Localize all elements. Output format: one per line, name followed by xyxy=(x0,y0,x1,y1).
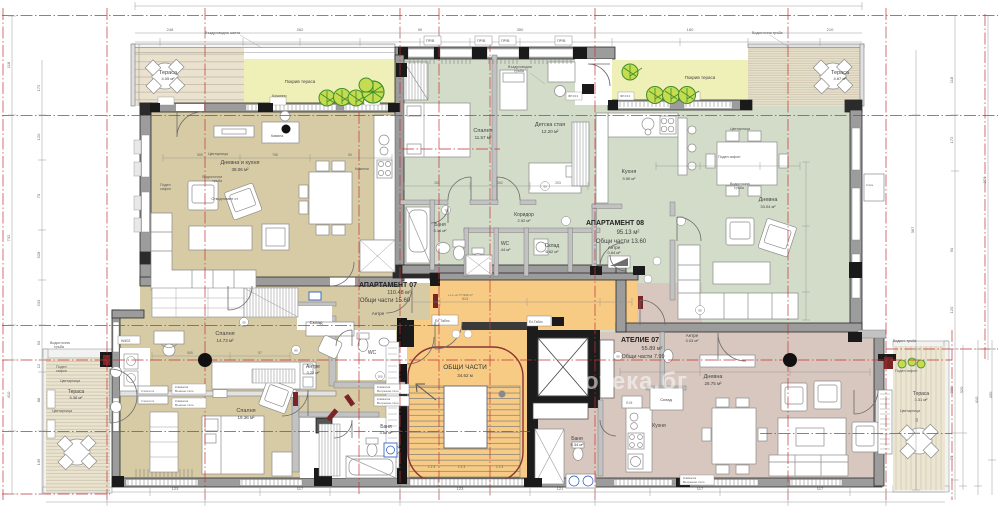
svg-text:Склад: Склад xyxy=(309,320,322,325)
svg-text:117: 117 xyxy=(297,486,304,491)
svg-text:+с.к +2.77=936.17: +с.к +2.77=936.17 xyxy=(448,293,473,297)
svg-text:ПР/В: ПР/В xyxy=(557,39,566,43)
svg-text:136: 136 xyxy=(36,458,41,465)
svg-text:АТЕЛИЕ 07: АТЕЛИЕ 07 xyxy=(621,337,659,344)
svg-text:3.03 м²: 3.03 м² xyxy=(686,338,700,343)
svg-text:тръба: тръба xyxy=(54,345,64,349)
svg-text:Цветарница: Цветарница xyxy=(60,379,80,383)
svg-text:Външно тяло: Външно тяло xyxy=(175,403,194,407)
svg-text:WC: WC xyxy=(368,350,377,356)
svg-text:Клим.: Клим. xyxy=(866,183,874,187)
svg-text:Въздуховодна шахта: Въздуховодна шахта xyxy=(205,31,240,35)
svg-text:121: 121 xyxy=(557,486,564,491)
svg-text:Външно тяло: Външно тяло xyxy=(175,389,194,393)
svg-text:11.57 м²: 11.57 м² xyxy=(475,135,492,140)
svg-text:Общи части 13.60: Общи части 13.60 xyxy=(596,239,647,245)
svg-text:Вътрешно тяло: Вътрешно тяло xyxy=(377,389,399,393)
svg-text:1 2 3: 1 2 3 xyxy=(428,465,435,469)
svg-text:Климатик: Климатик xyxy=(141,399,155,403)
svg-text:Коминни: Коминни xyxy=(272,94,287,98)
svg-text:ФР4/13: ФР4/13 xyxy=(568,94,578,98)
svg-text:90: 90 xyxy=(698,309,702,313)
svg-text:Цветарница: Цветарница xyxy=(52,409,72,413)
svg-text:117: 117 xyxy=(697,486,704,491)
svg-text:Общи части 15.60: Общи части 15.60 xyxy=(360,298,411,304)
svg-text:АПАРТАМЕНТ 07: АПАРТАМЕНТ 07 xyxy=(359,282,417,289)
svg-text:320: 320 xyxy=(982,176,987,183)
svg-text:758: 758 xyxy=(272,153,278,157)
svg-text:55.89 м²: 55.89 м² xyxy=(642,346,663,352)
svg-text:Поден сифон: Поден сифон xyxy=(895,369,917,373)
svg-text:172: 172 xyxy=(36,84,41,91)
svg-text:Вътрешно тяло: Вътрешно тяло xyxy=(683,480,705,484)
svg-text:Спалня: Спалня xyxy=(473,128,492,134)
svg-text:430: 430 xyxy=(988,391,993,398)
svg-text:505: 505 xyxy=(187,351,193,355)
svg-text:160: 160 xyxy=(687,27,694,32)
svg-text:Вътрешно тяло: Вътрешно тяло xyxy=(377,401,399,405)
svg-text:Спалня: Спалня xyxy=(236,408,255,414)
svg-text:248: 248 xyxy=(167,27,174,32)
svg-text:Детска стая: Детска стая xyxy=(535,122,565,128)
svg-text:Цветарница: Цветарница xyxy=(730,127,750,131)
svg-text:35: 35 xyxy=(949,455,954,460)
svg-text:410: 410 xyxy=(6,391,11,398)
svg-text:80: 80 xyxy=(294,349,298,353)
svg-text:110.48 м²: 110.48 м² xyxy=(387,290,411,296)
svg-text:97: 97 xyxy=(258,351,262,355)
svg-text:Ел.Табло: Ел.Табло xyxy=(529,320,543,324)
svg-text:3.16 м²: 3.16 м² xyxy=(434,228,448,233)
svg-text:Цветарница: Цветарница xyxy=(208,152,228,156)
svg-text:38.06 м²: 38.06 м² xyxy=(231,167,249,172)
svg-text:Цветарница: Цветарница xyxy=(900,409,920,413)
svg-text:5.38 м²: 5.38 м² xyxy=(70,395,84,400)
svg-text:отека.бг: отека.бг xyxy=(584,368,688,395)
svg-text:W402: W402 xyxy=(121,339,130,343)
svg-text:4.05 м²: 4.05 м² xyxy=(162,76,176,81)
svg-text:120: 120 xyxy=(949,306,954,313)
svg-text:262: 262 xyxy=(297,27,304,32)
svg-text:Склад: Склад xyxy=(660,397,672,402)
svg-text:210: 210 xyxy=(827,27,834,32)
svg-text:Поден сифон: Поден сифон xyxy=(718,155,740,159)
svg-text:513: 513 xyxy=(462,297,468,301)
svg-text:33.04 м²: 33.04 м² xyxy=(760,204,776,209)
svg-text:Коминни: Коминни xyxy=(355,167,369,171)
svg-text:90: 90 xyxy=(543,185,547,189)
svg-text:ОБЩИ ЧАСТИ: ОБЩИ ЧАСТИ xyxy=(443,364,487,371)
svg-text:1 2 3: 1 2 3 xyxy=(496,465,503,469)
svg-text:123: 123 xyxy=(172,486,179,491)
svg-text:34.62 м: 34.62 м xyxy=(457,373,473,378)
svg-text:123: 123 xyxy=(457,486,464,491)
svg-text:Камина: Камина xyxy=(271,134,283,138)
svg-text:2.92 м²: 2.92 м² xyxy=(518,218,532,223)
svg-text:95.13 м²: 95.13 м² xyxy=(617,230,640,236)
svg-text:4.67 м²: 4.67 м² xyxy=(834,76,848,81)
svg-text:12.20 м²: 12.20 м² xyxy=(541,129,559,134)
svg-text:330: 330 xyxy=(949,386,954,393)
svg-text:410: 410 xyxy=(974,396,979,403)
svg-text:Спалня: Спалня xyxy=(215,331,234,337)
svg-text:118: 118 xyxy=(949,76,954,83)
svg-text:0.64 м²: 0.64 м² xyxy=(608,250,622,255)
svg-text:12: 12 xyxy=(36,363,41,368)
svg-text:50: 50 xyxy=(36,340,41,345)
svg-text:5.34 м²: 5.34 м² xyxy=(571,442,585,447)
svg-text:120: 120 xyxy=(36,133,41,140)
svg-text:.44 м²: .44 м² xyxy=(500,247,511,252)
svg-text:90: 90 xyxy=(348,153,352,157)
svg-text:3.31 м²: 3.31 м² xyxy=(915,397,929,402)
svg-text:233: 233 xyxy=(36,299,41,306)
svg-text:Дневна: Дневна xyxy=(704,374,724,380)
svg-text:ПР/В: ПР/В xyxy=(501,39,510,43)
svg-text:ПР/В: ПР/В xyxy=(477,39,486,43)
svg-text:203: 203 xyxy=(555,181,561,185)
svg-text:Л.М: Л.М xyxy=(626,401,632,405)
svg-text:ПР/В: ПР/В xyxy=(426,39,435,43)
svg-text:117: 117 xyxy=(817,486,824,491)
svg-text:3.88 м²: 3.88 м² xyxy=(380,430,394,435)
svg-text:Общи части 7.99: Общи части 7.99 xyxy=(621,354,664,360)
svg-text:90: 90 xyxy=(418,27,423,32)
svg-text:Отводняване от: Отводняване от xyxy=(211,197,238,201)
svg-text:3.22 м²: 3.22 м² xyxy=(307,370,321,375)
svg-text:Кухня: Кухня xyxy=(652,423,666,429)
svg-text:9.50 м²: 9.50 м² xyxy=(623,176,637,181)
svg-text:320: 320 xyxy=(959,386,964,393)
svg-text:90: 90 xyxy=(242,321,246,325)
svg-text:Дневна и кухня: Дневна и кухня xyxy=(221,160,260,166)
svg-text:Антре: Антре xyxy=(372,311,385,316)
svg-text:528: 528 xyxy=(36,251,41,258)
svg-text:172: 172 xyxy=(949,136,954,143)
svg-text:732: 732 xyxy=(6,234,11,241)
svg-text:90: 90 xyxy=(616,355,620,359)
svg-text:100: 100 xyxy=(377,375,382,379)
svg-text:сифон: сифон xyxy=(160,187,171,191)
svg-text:тръба: тръба xyxy=(212,179,222,183)
svg-text:ФР4/13: ФР4/13 xyxy=(620,94,630,98)
svg-text:28.75 м²: 28.75 м² xyxy=(704,381,722,386)
svg-text:Дневна: Дневна xyxy=(759,197,779,203)
svg-text:70: 70 xyxy=(36,193,41,198)
svg-text:Покрив тераса: Покрив тераса xyxy=(685,75,716,80)
svg-text:1 2 3: 1 2 3 xyxy=(458,465,465,469)
svg-text:559: 559 xyxy=(197,153,203,157)
svg-text:19.36 м²: 19.36 м² xyxy=(237,415,255,420)
svg-text:Кухня: Кухня xyxy=(622,169,637,175)
svg-text:Водосточна тръба: Водосточна тръба xyxy=(752,31,782,35)
svg-text:тръба: тръба xyxy=(514,69,524,73)
svg-text:сифон: сифон xyxy=(56,369,67,373)
svg-text:АПАРТАМЕНТ 08: АПАРТАМЕНТ 08 xyxy=(586,220,644,227)
svg-text:Водост. тръба: Водост. тръба xyxy=(893,339,916,343)
svg-text:367: 367 xyxy=(910,226,915,233)
svg-text:90: 90 xyxy=(949,247,954,252)
svg-text:Климатик: Климатик xyxy=(141,389,155,393)
svg-text:262: 262 xyxy=(497,181,503,185)
svg-text:14.73 м²: 14.73 м² xyxy=(216,338,234,343)
svg-text:Покрив тераса: Покрив тераса xyxy=(285,79,316,84)
svg-text:118: 118 xyxy=(6,61,11,68)
svg-text:35: 35 xyxy=(914,417,919,422)
svg-text:Ел.Табло: Ел.Табло xyxy=(435,319,450,323)
svg-text:88: 88 xyxy=(36,397,41,402)
svg-text:350: 350 xyxy=(517,27,524,32)
svg-text:тръба: тръба xyxy=(734,186,744,190)
svg-text:6.62 м²: 6.62 м² xyxy=(546,249,560,254)
